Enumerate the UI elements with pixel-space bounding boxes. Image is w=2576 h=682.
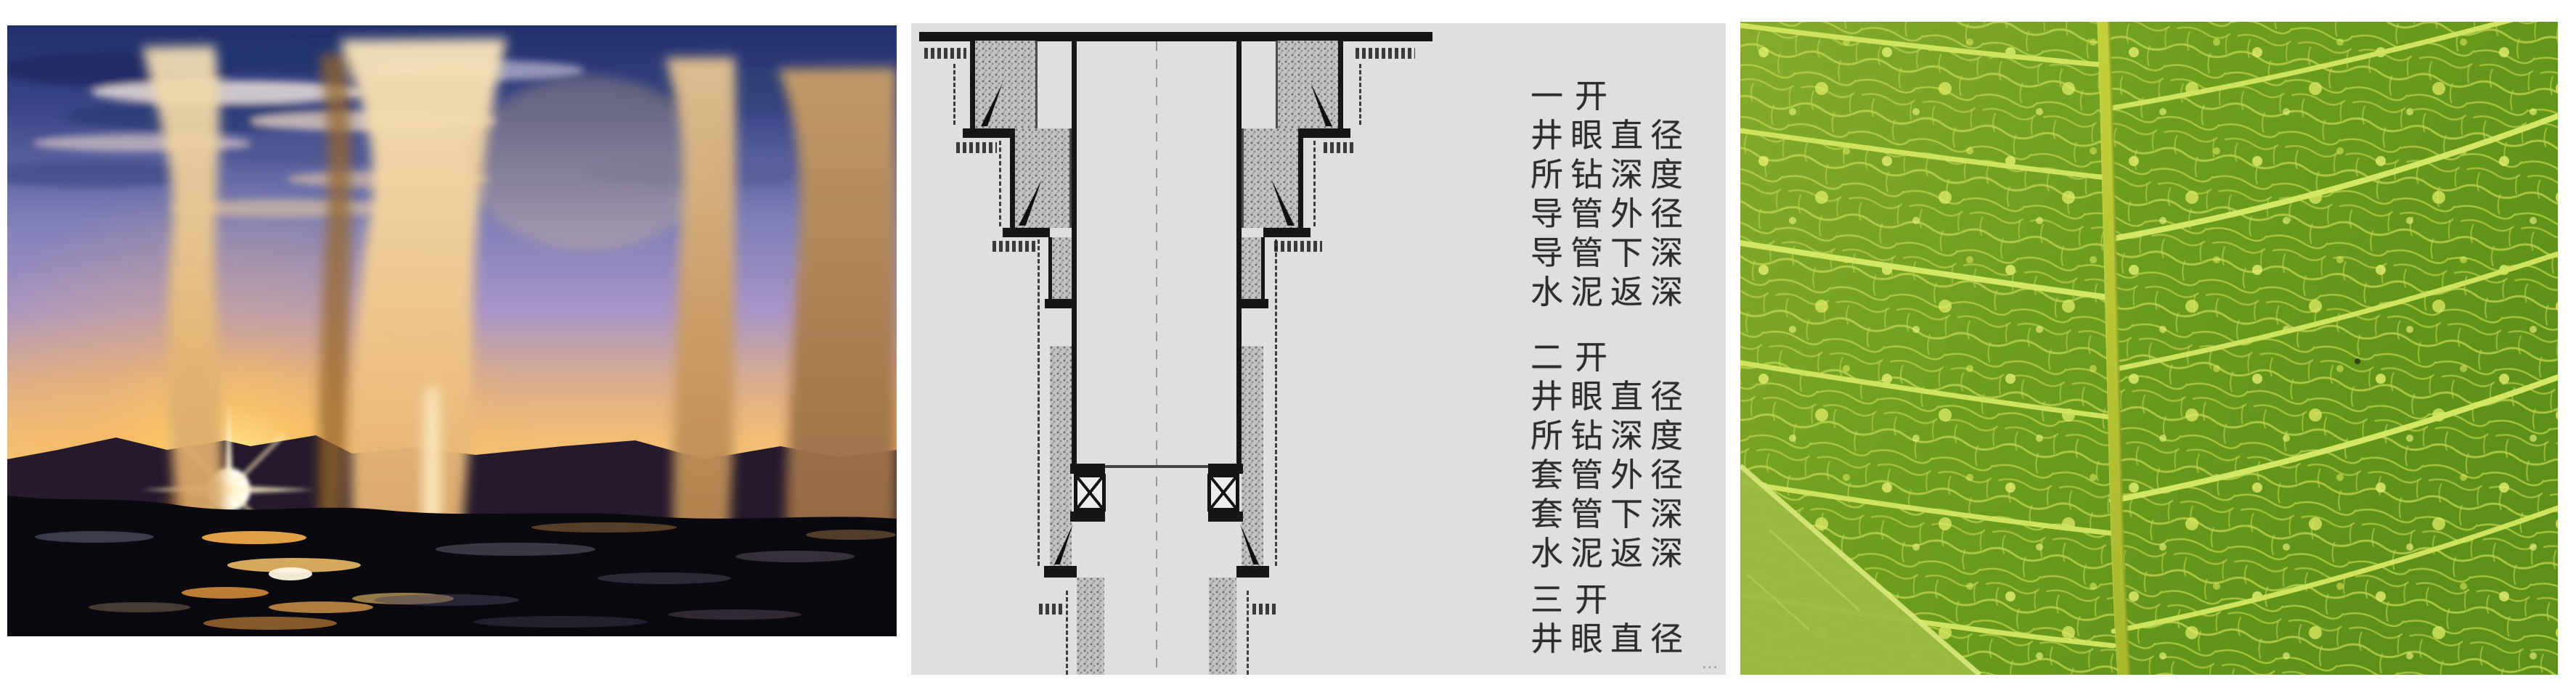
packer-top-bar-right <box>1208 464 1243 474</box>
casing-shoe-cap-right-3 <box>1236 566 1269 578</box>
depth-ticks-right-2 <box>1313 141 1316 226</box>
cement-column-left-1 <box>970 41 1038 128</box>
depth-ticks-left-3 <box>1038 239 1040 566</box>
well-casing-diagram: 一开 井眼直径 所钻深度 导管外径 导管下深 水泥返深 二开 井眼直径 所钻深度… <box>911 23 1726 675</box>
depth-ticks-right-3 <box>1275 239 1277 566</box>
casing-shoe-cap-left-2 <box>1003 228 1050 237</box>
production-casing-wall-right <box>1236 41 1242 464</box>
label-section2-line5: 水泥返深 <box>1530 527 1690 574</box>
depth-ticks-left-4 <box>1066 591 1068 675</box>
annotation-marks-right-4 <box>1252 604 1277 615</box>
packer-symbol-right <box>1207 474 1239 511</box>
cement-column-left-3-lower <box>1050 346 1072 566</box>
packer-top-bar-left <box>1070 464 1105 474</box>
truncation-dots: … <box>1701 653 1720 673</box>
liner-top-cap-right <box>1239 299 1268 308</box>
casing-shoe-cap-right-2 <box>1263 228 1311 237</box>
cement-column-right-3-lower <box>1242 346 1263 566</box>
leaf-macro-photo <box>1740 22 2558 675</box>
casing-shoe-cap-left-3 <box>1044 566 1077 578</box>
leaf-speck-dot <box>2355 358 2360 364</box>
casing-shoe-cap-left-1 <box>963 128 1011 138</box>
annotation-marks-right-2 <box>1324 142 1354 153</box>
cement-column-right-bottom <box>1209 578 1236 675</box>
annotation-marks-left-1 <box>924 48 966 59</box>
label-section3-line1: 井眼直径 <box>1530 612 1690 660</box>
depth-ticks-left-2 <box>999 141 1001 226</box>
geyser-photo-art <box>7 25 897 636</box>
figure-strip: 一开 井眼直径 所钻深度 导管外径 导管下深 水泥返深 二开 井眼直径 所钻深度… <box>0 0 2576 682</box>
packer-bottom-bar-left <box>1070 511 1105 522</box>
depth-ticks-right-1 <box>1359 64 1361 125</box>
cement-column-left-bottom <box>1077 578 1104 675</box>
annotation-marks-right-3 <box>1274 241 1322 252</box>
geyser-sunset-photo <box>7 25 897 636</box>
casing-shoe-cap-right-1 <box>1302 128 1350 138</box>
cement-column-right-2 <box>1242 128 1303 228</box>
annotation-marks-left-4 <box>1039 604 1064 615</box>
tubing-connector-line <box>1105 465 1208 468</box>
packer-bottom-bar-right <box>1208 511 1243 522</box>
packer-symbol-left <box>1074 474 1106 511</box>
label-section1-line5: 水泥返深 <box>1530 266 1690 313</box>
cement-column-left-2 <box>1010 128 1072 228</box>
annotation-marks-left-2 <box>956 142 997 153</box>
production-casing-wall-left <box>1072 41 1077 464</box>
depth-ticks-left-1 <box>953 64 955 125</box>
liner-top-cap-left <box>1045 299 1074 308</box>
annotation-marks-left-3 <box>993 241 1036 252</box>
cement-column-right-3-upper <box>1242 237 1265 299</box>
annotation-marks-right-1 <box>1356 48 1415 59</box>
leaf-photo-art <box>1740 22 2558 675</box>
cement-column-right-1 <box>1276 41 1343 128</box>
well-centerline <box>1156 41 1157 675</box>
cement-column-left-3-upper <box>1048 237 1072 299</box>
depth-ticks-right-4 <box>1247 591 1249 675</box>
